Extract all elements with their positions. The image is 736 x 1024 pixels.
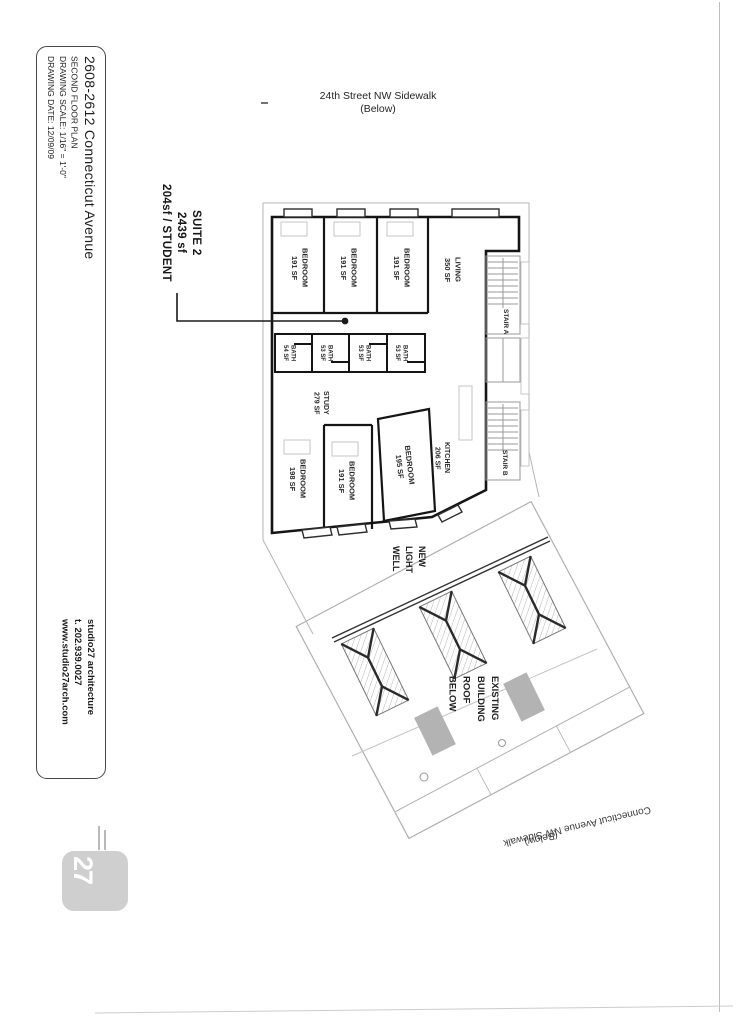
drawing-sheet: 2608-2612 Connecticut Avenue SECOND FLOO… (0, 0, 736, 1024)
room-label-bath-2: BATH53 SF (317, 331, 333, 375)
room-label-bedroom-5: BEDROOM191 SF (336, 449, 356, 513)
drawing-date: DRAWING DATE: 12/09/09 (44, 56, 56, 326)
sheet-name: SECOND FLOOR PLAN (68, 56, 80, 326)
room-label-kitchen: KITCHEN206 SF (432, 429, 451, 487)
street-label-top: 24th Street NW Sidewalk (Below) (298, 90, 458, 116)
studio27-logo: 27 (62, 851, 128, 911)
light-well-label: NEW LIGHT WELL (389, 546, 428, 588)
firm-website: www.studio27arch.com (58, 619, 71, 769)
suite-density: 204sf / STUDENT (158, 176, 173, 290)
room-label-study: STUDY279 SF (311, 374, 330, 432)
room-label-living: LIVING350 SF (442, 238, 462, 302)
room-label-bedroom-1: BEDROOM191 SF (289, 236, 309, 300)
room-label-stair-b: STAIR B (500, 433, 508, 493)
room-label-stair-a: STAIR A (501, 292, 509, 352)
project-address: 2608-2612 Connecticut Avenue (80, 56, 100, 326)
suite-area: 2439 sf (173, 176, 188, 290)
room-label-bedroom-2: BEDROOM191 SF (338, 236, 358, 300)
existing-roof-label: EXISTING BUILDING ROOF BELOW (444, 676, 501, 754)
firm-phone: t. 202.939.0027 (70, 619, 83, 769)
title-block-text: 2608-2612 Connecticut Avenue SECOND FLOO… (44, 56, 100, 326)
room-label-bedroom-3: BEDROOM191 SF (391, 236, 411, 300)
room-label-bedroom-4: BEDROOM198 SF (287, 447, 307, 511)
suite-callout: SUITE 2 2439 sf 204sf / STUDENT (158, 176, 203, 290)
street-label-line2: (Below) (298, 103, 458, 116)
street-label-line1: 24th Street NW Sidewalk (298, 90, 458, 103)
logo-fine-print (104, 830, 106, 850)
drawing-scale: DRAWING SCALE: 1/16" = 1'-0" (56, 56, 68, 326)
room-label-bath-4: BATH53 SF (392, 331, 408, 375)
suite-name: SUITE 2 (188, 176, 203, 290)
firm-block: studio27 architecture t. 202.939.0027 ww… (58, 619, 96, 769)
firm-name: studio27 architecture (83, 619, 96, 769)
title-block: 2608-2612 Connecticut Avenue SECOND FLOO… (36, 46, 106, 779)
room-label-bath-3: BATH53 SF (355, 331, 371, 375)
leader-dot (342, 318, 349, 325)
logo-digits: 27 (67, 856, 98, 884)
logo-fine-print (98, 826, 100, 850)
room-label-bath-1: BATH54 SF (280, 331, 296, 375)
window-strips (521, 262, 529, 466)
